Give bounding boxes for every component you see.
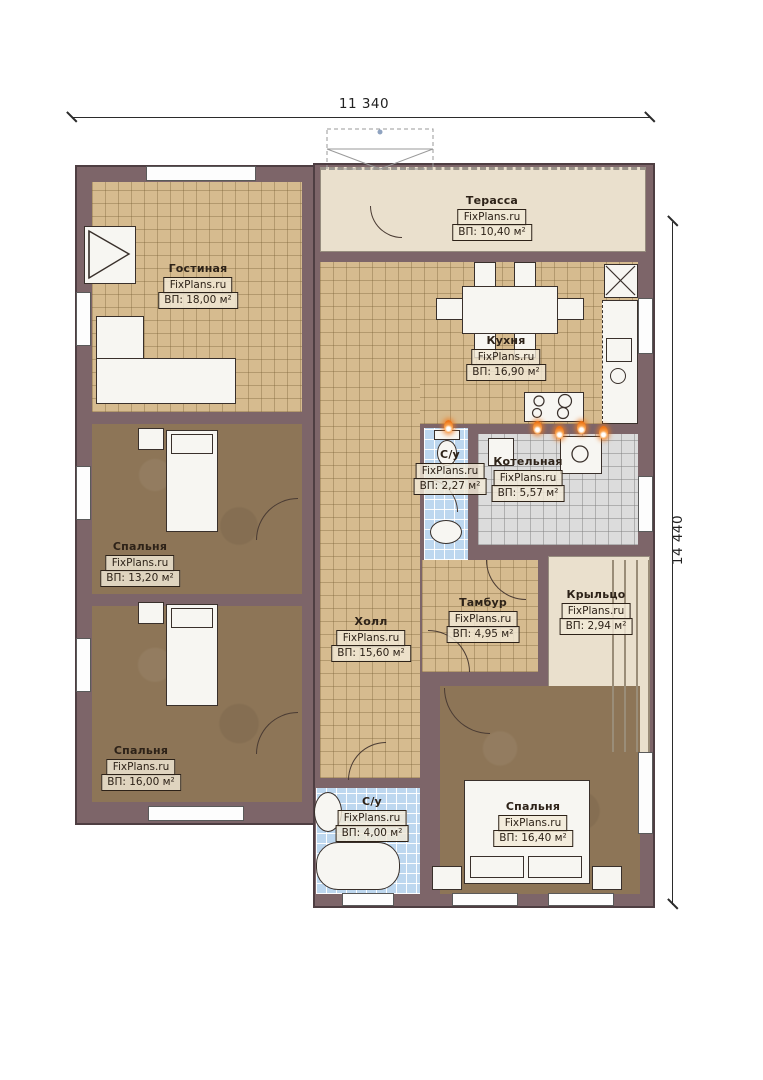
room-label-boiler: Котельная FixPlans.ruВП: 5,57 м² (492, 455, 565, 502)
room-name: Гостиная (158, 262, 238, 275)
chair-icon (436, 298, 464, 320)
room-name: Крыльцо (560, 588, 633, 601)
pillow-icon (171, 434, 213, 454)
room-area: ВП: 4,95 м² (447, 626, 520, 643)
room-name: Спальня (100, 540, 180, 553)
nightstand-icon (432, 866, 462, 890)
room-label-wc-big: С/у FixPlans.ruВП: 4,00 м² (336, 795, 409, 842)
dimension-width-label: 11 340 (284, 96, 444, 112)
bathtub-icon (316, 842, 400, 890)
flame-marker-icon (577, 421, 586, 434)
room-name: С/у (414, 448, 487, 461)
room-area: ВП: 5,57 м² (492, 485, 565, 502)
dining-table-icon (462, 286, 558, 334)
room-name: Спальня (101, 744, 181, 757)
window-boiler-right (638, 476, 653, 532)
window-bedroom3-bottom-1 (452, 893, 518, 906)
fridge-icon (604, 264, 638, 298)
fireplace-icon (84, 226, 136, 284)
window-living-left (76, 292, 91, 346)
room-area: ВП: 16,40 м² (493, 830, 573, 847)
room-name: Котельная (492, 455, 565, 468)
cooktop-icon (524, 392, 584, 422)
room-area: ВП: 4,00 м² (336, 825, 409, 842)
chair-icon (514, 262, 536, 288)
canopy-icon (326, 128, 434, 170)
window-bedroom2-bottom (148, 806, 244, 821)
pillow-icon (171, 608, 213, 628)
room-label-bedroom-2: Спальня FixPlans.ruВП: 16,00 м² (101, 744, 181, 791)
nightstand-icon (138, 428, 164, 450)
flame-marker-icon (555, 426, 564, 439)
room-area: ВП: 18,00 м² (158, 292, 238, 309)
boiler-icon (560, 436, 602, 474)
room-label-terrace: Терасса FixPlans.ruВП: 10,40 м² (452, 194, 532, 241)
room-name: С/у (336, 795, 409, 808)
room-area: ВП: 16,90 м² (466, 364, 546, 381)
dimension-height-line (672, 222, 673, 905)
room-name: Холл (331, 615, 411, 628)
room-area: ВП: 15,60 м² (331, 645, 411, 662)
nightstand-icon (592, 866, 622, 890)
room-label-wc-small: С/у FixPlans.ruВП: 2,27 м² (414, 448, 487, 495)
room-area: ВП: 2,27 м² (414, 478, 487, 495)
sofa-icon (96, 358, 236, 404)
flame-marker-icon (599, 426, 608, 439)
chair-icon (474, 262, 496, 288)
window-bedroom3-bottom-2 (548, 893, 614, 906)
window-bedroom2-left (76, 638, 91, 692)
dimension-width-line (72, 117, 650, 118)
floor-plan-canvas: 11 340 14 440 (0, 0, 763, 1080)
sink-icon (430, 520, 462, 544)
window-bedroom1-left (76, 466, 91, 520)
flame-marker-icon (533, 421, 542, 434)
room-area: ВП: 16,00 м² (101, 774, 181, 791)
room-label-bedroom-3: Спальня FixPlans.ruВП: 16,40 м² (493, 800, 573, 847)
room-name: Терасса (452, 194, 532, 207)
room-label-living: Гостиная FixPlans.ruВП: 18,00 м² (158, 262, 238, 309)
room-area: ВП: 13,20 м² (100, 570, 180, 587)
room-name: Тамбур (447, 596, 520, 609)
room-name: Кухня (466, 334, 546, 347)
pillow-icon (470, 856, 524, 878)
room-label-hall: Холл FixPlans.ruВП: 15,60 м² (331, 615, 411, 662)
kitchen-sink-icon (610, 368, 626, 384)
room-area: ВП: 2,94 м² (560, 618, 633, 635)
kitchen-sink-icon (606, 338, 632, 362)
window-living-top (146, 166, 256, 181)
room-label-kitchen: Кухня FixPlans.ruВП: 16,90 м² (466, 334, 546, 381)
room-label-tambur: Тамбур FixPlans.ruВП: 4,95 м² (447, 596, 520, 643)
window-bathroom-bottom (342, 893, 394, 906)
chair-icon (556, 298, 584, 320)
window-kitchen-right (638, 298, 653, 354)
room-name: Спальня (493, 800, 573, 813)
room-area: ВП: 10,40 м² (452, 224, 532, 241)
room-floor-hall (320, 375, 420, 778)
pillow-icon (528, 856, 582, 878)
room-label-bedroom-1: Спальня FixPlans.ruВП: 13,20 м² (100, 540, 180, 587)
room-label-porch: Крыльцо FixPlans.ruВП: 2,94 м² (560, 588, 633, 635)
kitchen-counter-icon (602, 300, 638, 424)
window-bedroom3-right (638, 752, 653, 834)
nightstand-icon (138, 602, 164, 624)
flame-marker-icon (444, 420, 453, 433)
